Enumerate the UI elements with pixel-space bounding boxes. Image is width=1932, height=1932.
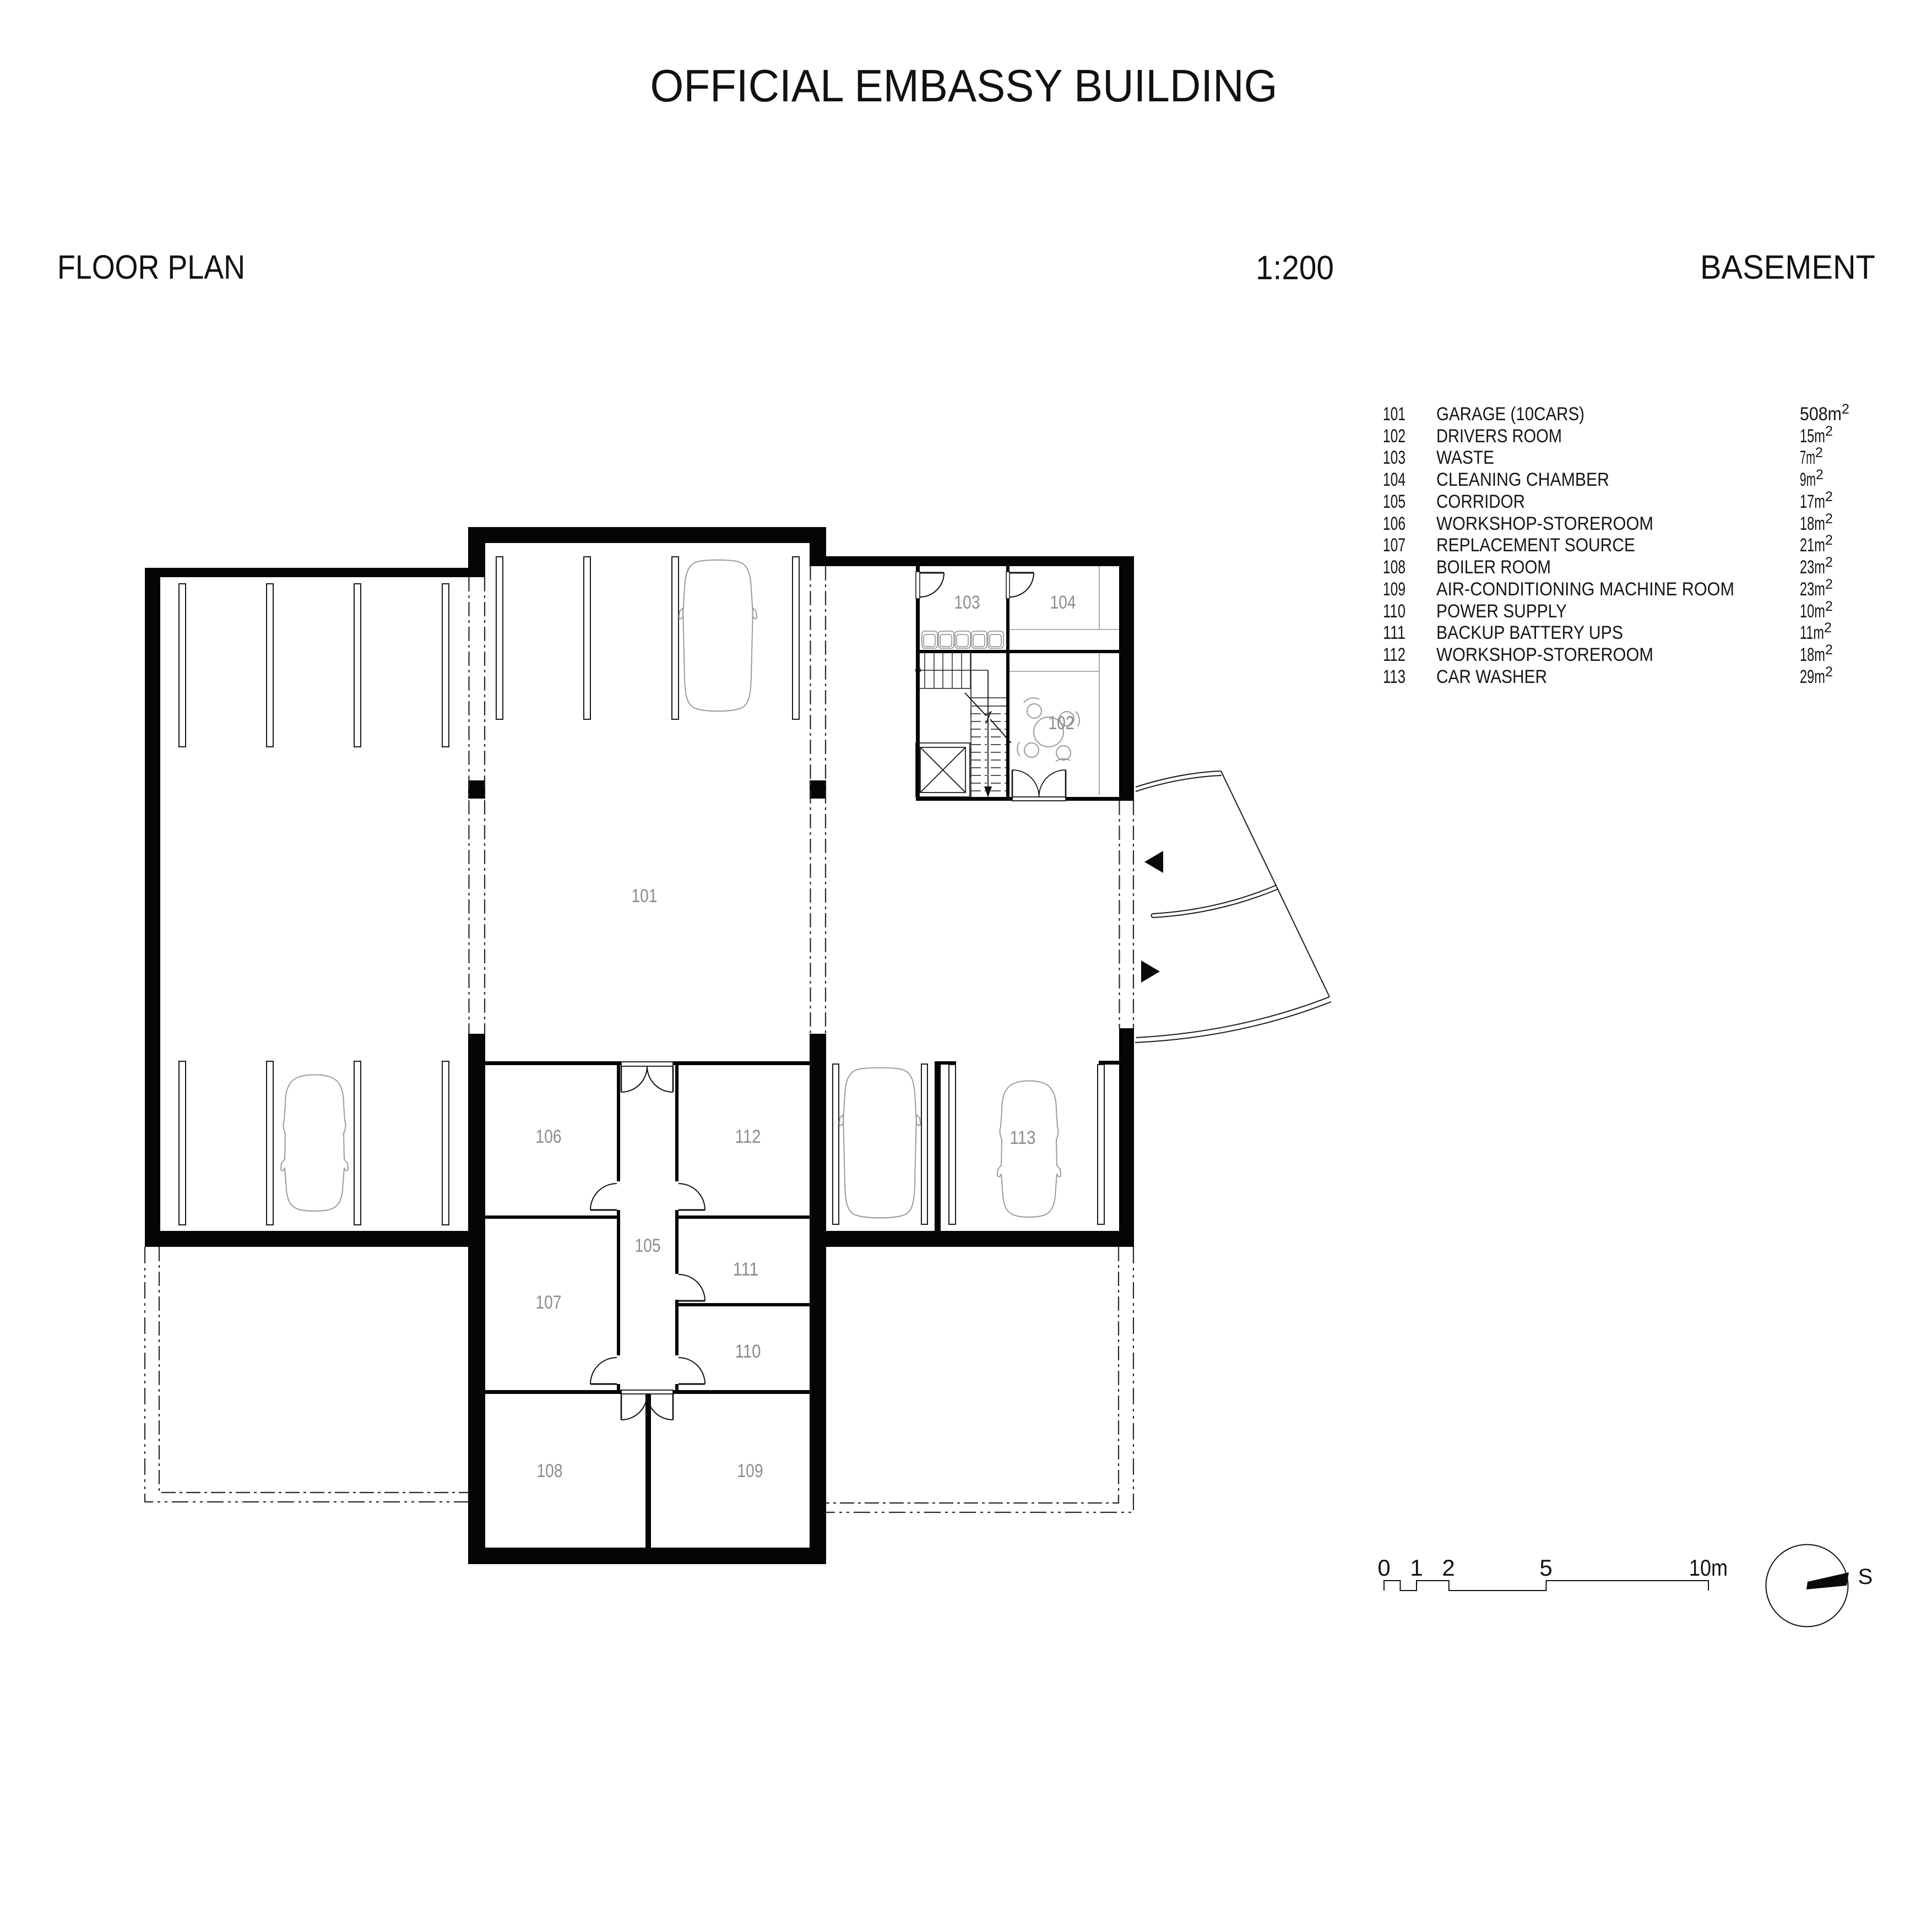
svg-text:DRIVERS ROOM: DRIVERS ROOM [1436, 426, 1562, 447]
svg-text:102: 102 [1383, 426, 1405, 447]
svg-text:105: 105 [1383, 491, 1405, 512]
svg-text:2: 2 [1442, 1555, 1455, 1581]
svg-text:109: 109 [1383, 579, 1405, 600]
svg-text:111: 111 [1383, 622, 1405, 643]
svg-text:0: 0 [1377, 1555, 1390, 1581]
svg-text:104: 104 [1050, 592, 1076, 613]
svg-text:107: 107 [1383, 535, 1405, 556]
svg-text:S: S [1858, 1565, 1873, 1589]
svg-text:105: 105 [635, 1235, 661, 1256]
svg-text:107: 107 [536, 1292, 562, 1313]
svg-text:104: 104 [1383, 469, 1405, 490]
svg-text:103: 103 [1383, 447, 1405, 468]
svg-text:WORKSHOP-STOREROOM: WORKSHOP-STOREROOM [1436, 513, 1653, 534]
svg-text:AIR-CONDITIONING MACHINE ROOM: AIR-CONDITIONING MACHINE ROOM [1436, 579, 1734, 600]
svg-text:BACKUP BATTERY UPS: BACKUP BATTERY UPS [1436, 622, 1623, 643]
svg-text:FLOOR PLAN: FLOOR PLAN [57, 248, 245, 286]
svg-text:1:200: 1:200 [1256, 249, 1334, 286]
svg-text:BOILER ROOM: BOILER ROOM [1436, 557, 1551, 578]
svg-text:109: 109 [737, 1461, 763, 1481]
svg-text:CAR WASHER: CAR WASHER [1436, 666, 1547, 687]
svg-text:WORKSHOP-STOREROOM: WORKSHOP-STOREROOM [1436, 644, 1653, 665]
svg-text:101: 101 [1383, 404, 1405, 425]
svg-text:110: 110 [1383, 601, 1405, 622]
svg-text:OFFICIAL EMBASSY BUILDING: OFFICIAL EMBASSY BUILDING [650, 60, 1278, 111]
svg-text:POWER SUPPLY: POWER SUPPLY [1436, 601, 1567, 622]
svg-text:108: 108 [1383, 557, 1405, 578]
svg-text:WASTE: WASTE [1436, 447, 1494, 468]
svg-text:102: 102 [1049, 713, 1074, 734]
svg-text:106: 106 [536, 1126, 562, 1147]
svg-text:5: 5 [1539, 1555, 1552, 1581]
svg-text:1: 1 [1410, 1555, 1423, 1581]
svg-text:CORRIDOR: CORRIDOR [1436, 491, 1525, 512]
svg-text:112: 112 [1383, 644, 1405, 665]
svg-text:BASEMENT: BASEMENT [1700, 248, 1875, 286]
svg-text:113: 113 [1383, 666, 1405, 687]
svg-text:113: 113 [1010, 1127, 1036, 1148]
svg-text:110: 110 [735, 1341, 761, 1362]
svg-text:103: 103 [954, 592, 980, 613]
svg-text:CLEANING CHAMBER: CLEANING CHAMBER [1436, 469, 1609, 490]
svg-text:111: 111 [733, 1259, 759, 1280]
svg-text:108: 108 [537, 1461, 563, 1481]
svg-text:101: 101 [632, 886, 658, 907]
svg-text:GARAGE (10CARS): GARAGE (10CARS) [1436, 404, 1584, 425]
svg-text:106: 106 [1383, 513, 1405, 534]
svg-text:112: 112 [735, 1126, 761, 1147]
svg-text:REPLACEMENT SOURCE: REPLACEMENT SOURCE [1436, 535, 1635, 556]
svg-text:10m: 10m [1689, 1555, 1728, 1581]
